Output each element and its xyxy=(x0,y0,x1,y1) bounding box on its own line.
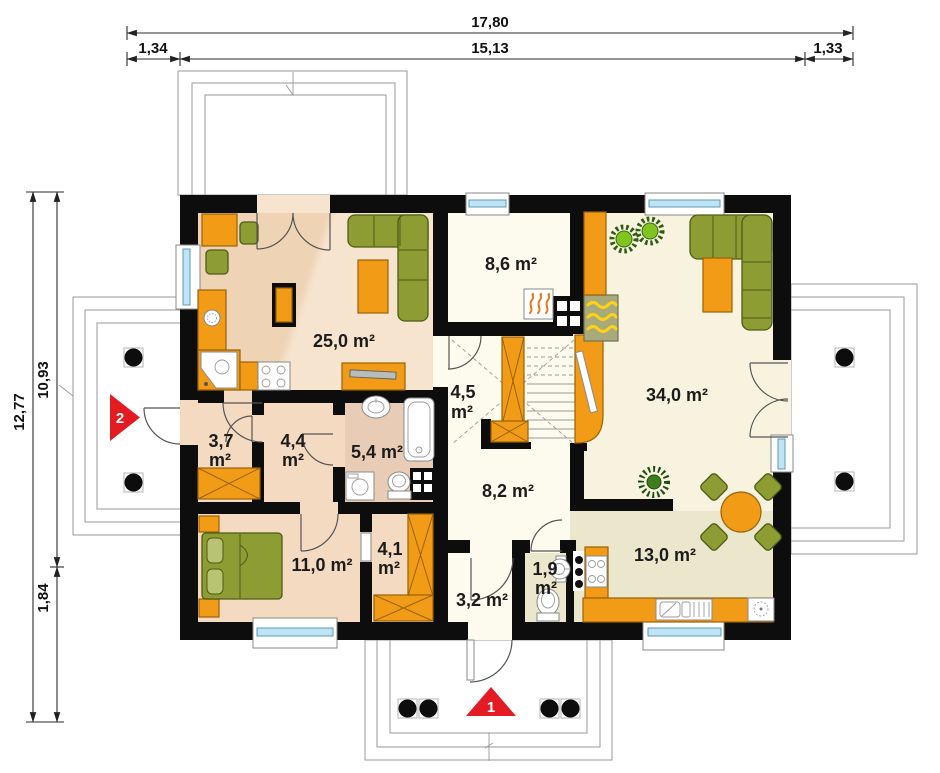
window xyxy=(643,618,724,650)
label-room-86: 8,6 m² xyxy=(485,254,537,274)
toilet-icon xyxy=(388,472,411,499)
label-room-82: 8,2 m² xyxy=(482,481,534,501)
chair xyxy=(240,222,258,244)
dim-total-width: 17,80 xyxy=(471,14,509,31)
label-room-44: 4,4 xyxy=(280,431,305,451)
terrace-top xyxy=(178,71,407,195)
chimney-block xyxy=(272,283,296,327)
wardrobe xyxy=(198,468,260,499)
terrace-column xyxy=(124,348,143,367)
dim-main-height: 10,93 xyxy=(35,361,52,399)
fireplace-icon xyxy=(524,289,553,319)
terrace-right xyxy=(791,284,917,554)
label-room-37: 3,7 xyxy=(208,431,233,451)
label-room-32: 3,2 m² xyxy=(456,590,508,610)
window xyxy=(466,193,509,215)
dim-total-height: 12,77 xyxy=(11,393,28,431)
svg-text:1: 1 xyxy=(487,699,495,716)
stove-icon xyxy=(258,362,290,390)
svg-text:2: 2 xyxy=(116,410,124,427)
tv-stand xyxy=(342,363,405,390)
label-room-41: 4,1 xyxy=(377,539,402,559)
nightstand xyxy=(199,599,219,617)
hob-icon xyxy=(748,598,774,621)
terrace-column xyxy=(835,472,854,491)
window xyxy=(771,435,793,472)
bed xyxy=(202,533,282,599)
terrace-column xyxy=(124,473,143,492)
porch-column xyxy=(419,699,438,718)
nightstand xyxy=(199,516,219,532)
coffee-table xyxy=(703,258,732,312)
label-room-130: 13,0 m² xyxy=(634,545,696,565)
dimensions-top: 17,80 1,34 15,13 1,33 xyxy=(127,14,853,66)
dim-left-offset: 1,34 xyxy=(138,40,168,57)
sink-icon xyxy=(362,396,390,418)
washing-machine-icon xyxy=(346,472,374,500)
coffee-table xyxy=(358,260,388,313)
svg-text:m²: m² xyxy=(378,558,400,578)
dim-porch-depth: 1,84 xyxy=(35,583,52,613)
tall-cabinet xyxy=(584,212,606,295)
stair-column xyxy=(502,337,524,425)
label-room-34: 34,0 m² xyxy=(646,385,708,405)
window xyxy=(645,193,724,215)
window xyxy=(253,618,337,648)
window xyxy=(176,245,200,309)
stair-base-cabinet xyxy=(491,421,528,442)
bathtub-icon xyxy=(404,398,434,461)
porch-column xyxy=(540,699,559,718)
hob-icon xyxy=(204,310,220,326)
dim-main-width: 15,13 xyxy=(471,40,509,57)
desk xyxy=(202,214,237,246)
hearth-icon xyxy=(584,295,618,341)
label-room-19: 1,9 xyxy=(532,559,557,579)
label-room-25: 25,0 m² xyxy=(313,331,375,351)
stove-icon xyxy=(586,556,607,587)
porch-column xyxy=(561,699,580,718)
terrace-column xyxy=(835,348,854,367)
porch-column xyxy=(398,699,417,718)
stair-banister xyxy=(575,335,603,443)
svg-text:m²: m² xyxy=(209,450,231,470)
chair xyxy=(206,250,228,274)
svg-text:m²: m² xyxy=(535,578,557,598)
dim-right-offset: 1,33 xyxy=(813,40,842,57)
label-room-54: 5,4 m² xyxy=(351,442,403,462)
sink-icon xyxy=(656,599,712,620)
label-room-45: 4,5 xyxy=(450,382,475,402)
svg-text:m²: m² xyxy=(282,450,304,470)
svg-text:m²: m² xyxy=(451,402,473,422)
floor-plan-page: 17,80 1,34 15,13 1,33 12,77 10,93 1,84 xyxy=(0,0,940,773)
dining-table xyxy=(721,492,761,532)
label-room-110: 11,0 m² xyxy=(291,555,352,575)
floor-plan-drawing: 17,80 1,34 15,13 1,33 12,77 10,93 1,84 xyxy=(0,0,940,773)
